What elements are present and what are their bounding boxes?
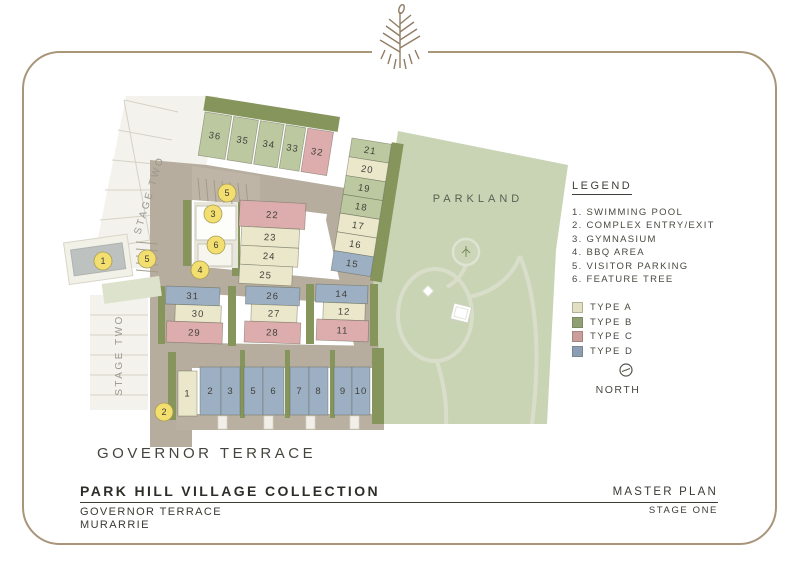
type-b-swatch [572, 317, 583, 328]
type-c-label: TYPE C [590, 331, 633, 342]
lot-number: 19 [357, 182, 371, 195]
type-b-label: TYPE B [590, 317, 633, 328]
type-a-swatch [572, 302, 583, 313]
plan-type-label: MASTER PLAN [613, 486, 718, 498]
address-line2: MURARRIE [80, 519, 150, 531]
marker-number: 4 [197, 265, 202, 275]
compass-icon [618, 362, 634, 378]
lot-number: 20 [360, 164, 374, 177]
legend-item: 3. GYMNASIUM [572, 233, 747, 246]
type-c-swatch [572, 331, 583, 342]
lot-number: 25 [259, 270, 272, 282]
legend-item: 1. SWIMMING POOL [572, 206, 747, 219]
lot-number: 31 [186, 291, 199, 302]
lot-number: 12 [338, 306, 351, 317]
marker-number: 6 [213, 240, 218, 250]
parkland-area [371, 131, 568, 424]
marker-number: 2 [161, 407, 166, 417]
lot-number: 6 [270, 386, 276, 397]
marker-number: 1 [100, 256, 105, 266]
legend-item: 5. VISITOR PARKING [572, 260, 747, 273]
legend-type-row: TYPE C [572, 329, 747, 344]
type-a-label: TYPE A [590, 302, 632, 313]
lot-number: 32 [310, 146, 324, 159]
lot-number: 1 [184, 389, 190, 400]
north-label: NORTH [585, 384, 651, 396]
master-plan-page: 3635343332212019181716152223242531302926… [0, 0, 799, 565]
legend-item: 6. FEATURE TREE [572, 273, 747, 286]
stage-label: STAGE ONE [649, 505, 718, 516]
marker-number: 3 [210, 209, 215, 219]
lot-number: 18 [354, 201, 368, 214]
tree-logo-icon [360, 2, 440, 74]
lot-number: 9 [340, 386, 346, 397]
lot-number: 15 [345, 258, 359, 271]
lot-number: 33 [285, 142, 299, 155]
lot-number: 21 [363, 145, 377, 158]
title-rule [80, 502, 718, 503]
type-d-label: TYPE D [590, 346, 633, 357]
lot-number: 17 [351, 220, 365, 233]
stage-two-label-lower: STAGE TWO [114, 314, 125, 396]
lot-number: 34 [262, 138, 276, 151]
address-line1: GOVERNOR TERRACE [80, 506, 222, 518]
lot-number: 35 [235, 134, 249, 147]
lot-number: 22 [266, 210, 279, 222]
lot-number: 3 [227, 386, 233, 397]
lot-number: 36 [208, 130, 222, 143]
site-plan: 3635343332212019181716152223242531302926… [55, 85, 575, 475]
lot-number: 10 [355, 386, 368, 397]
lot-number: 7 [296, 386, 302, 397]
legend-item: 2. COMPLEX ENTRY/EXIT [572, 219, 747, 232]
lot-number: 27 [268, 308, 281, 319]
type-d-swatch [572, 346, 583, 357]
legend-item: 4. BBQ AREA [572, 246, 747, 259]
lot-number: 26 [266, 291, 279, 302]
legend: LEGEND 1. SWIMMING POOL 2. COMPLEX ENTRY… [572, 176, 747, 358]
lot-number: 16 [348, 239, 362, 252]
legend-type-row: TYPE D [572, 344, 747, 359]
project-title: PARK HILL VILLAGE COLLECTION [80, 483, 380, 499]
lot-number: 2 [207, 386, 213, 397]
marker-number: 5 [224, 188, 229, 198]
lot-number: 5 [250, 386, 256, 397]
parkland-label: PARKLAND [433, 193, 523, 205]
lot-number: 8 [315, 386, 321, 397]
legend-title: LEGEND [572, 180, 632, 195]
lot-number: 29 [188, 328, 201, 339]
street-label: GOVERNOR TERRACE [97, 445, 316, 462]
legend-type-row: TYPE A [572, 300, 747, 315]
lot-number: 14 [335, 289, 348, 300]
lot-number: 28 [266, 327, 279, 338]
legend-type-row: TYPE B [572, 315, 747, 330]
lot-number: 24 [263, 251, 276, 263]
marker-number: 5 [144, 254, 149, 264]
lot-number: 30 [192, 309, 205, 320]
legend-type-swatches: TYPE A TYPE B TYPE C TYPE D [572, 300, 747, 358]
lot-number: 23 [264, 232, 277, 244]
lot-number: 11 [336, 325, 348, 336]
north-indicator: NORTH [585, 362, 651, 396]
